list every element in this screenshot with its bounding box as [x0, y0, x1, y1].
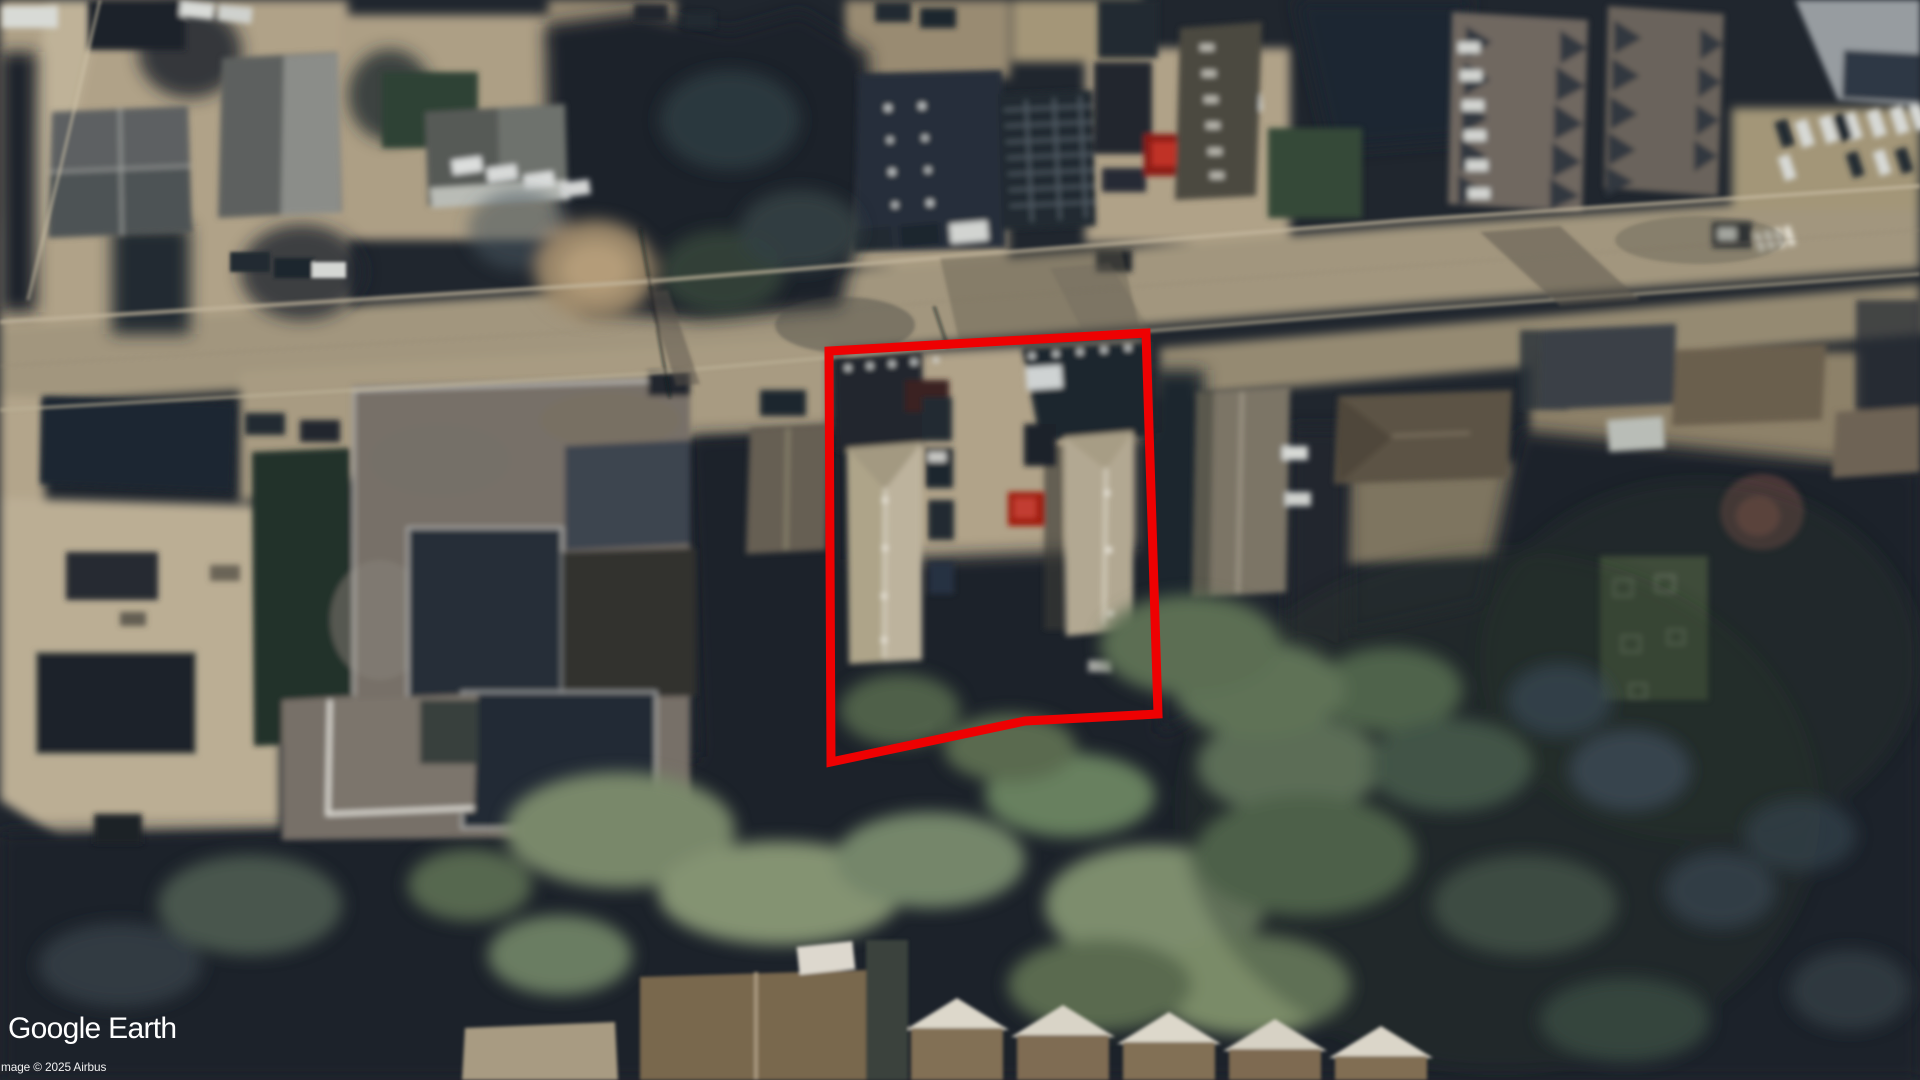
svg-text:mage © 2025 Airbus: mage © 2025 Airbus — [1, 1060, 106, 1074]
svg-text:Google Earth: Google Earth — [8, 1012, 176, 1045]
